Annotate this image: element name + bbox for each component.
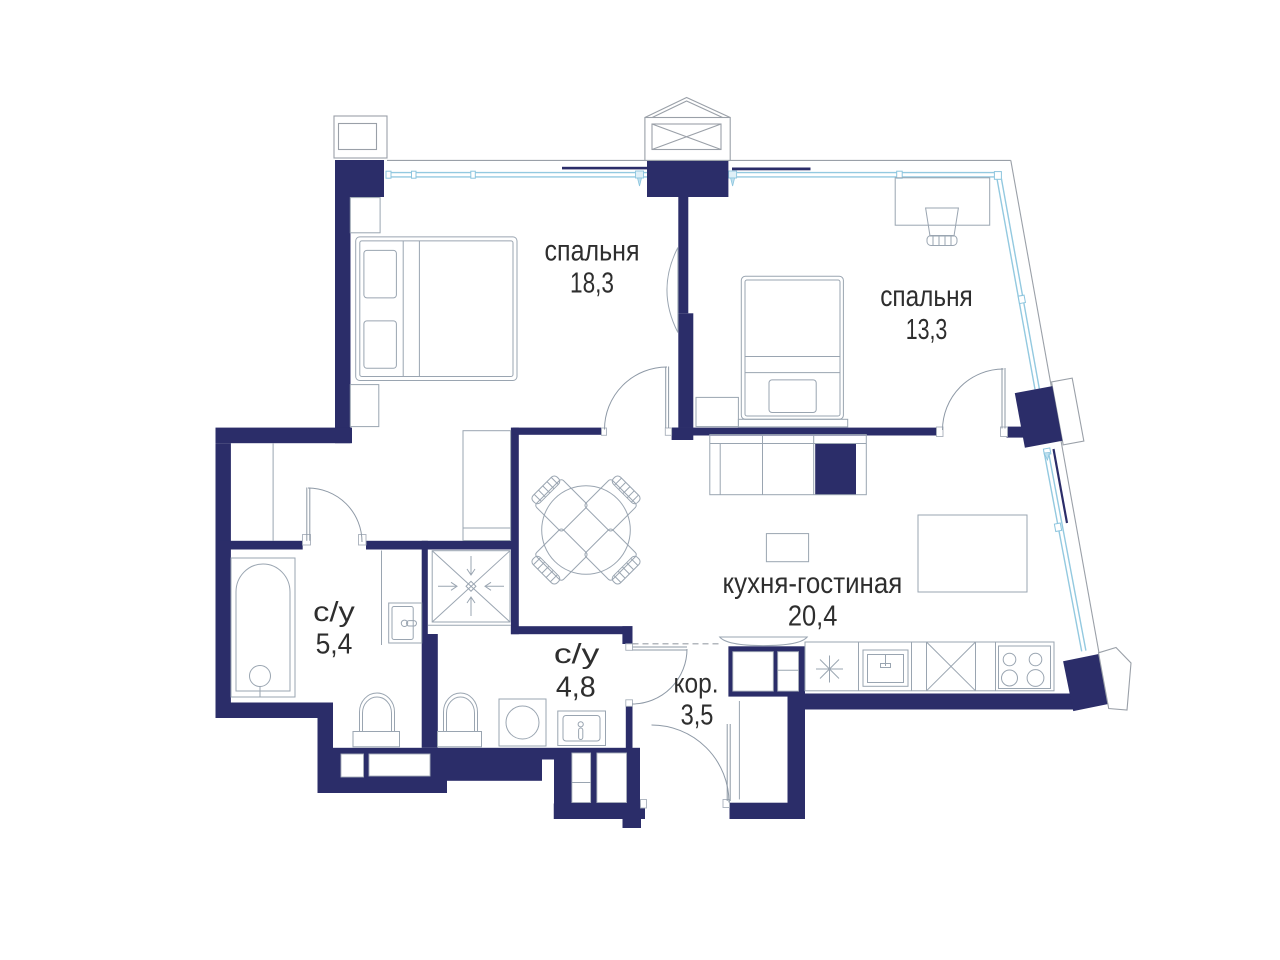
svg-text:спальня: спальня [880,280,973,313]
svg-text:кор.: кор. [674,667,719,698]
svg-text:спальня: спальня [545,235,640,268]
svg-text:4,8: 4,8 [556,672,596,704]
svg-text:3,5: 3,5 [681,699,714,731]
svg-text:20,4: 20,4 [788,601,838,633]
svg-text:с/у: с/у [313,596,355,627]
svg-text:с/у: с/у [554,638,600,669]
svg-text:13,3: 13,3 [906,314,948,346]
svg-text:5,4: 5,4 [316,629,353,661]
svg-text:18,3: 18,3 [570,268,614,300]
svg-text:кухня-гостиная: кухня-гостиная [723,567,903,600]
